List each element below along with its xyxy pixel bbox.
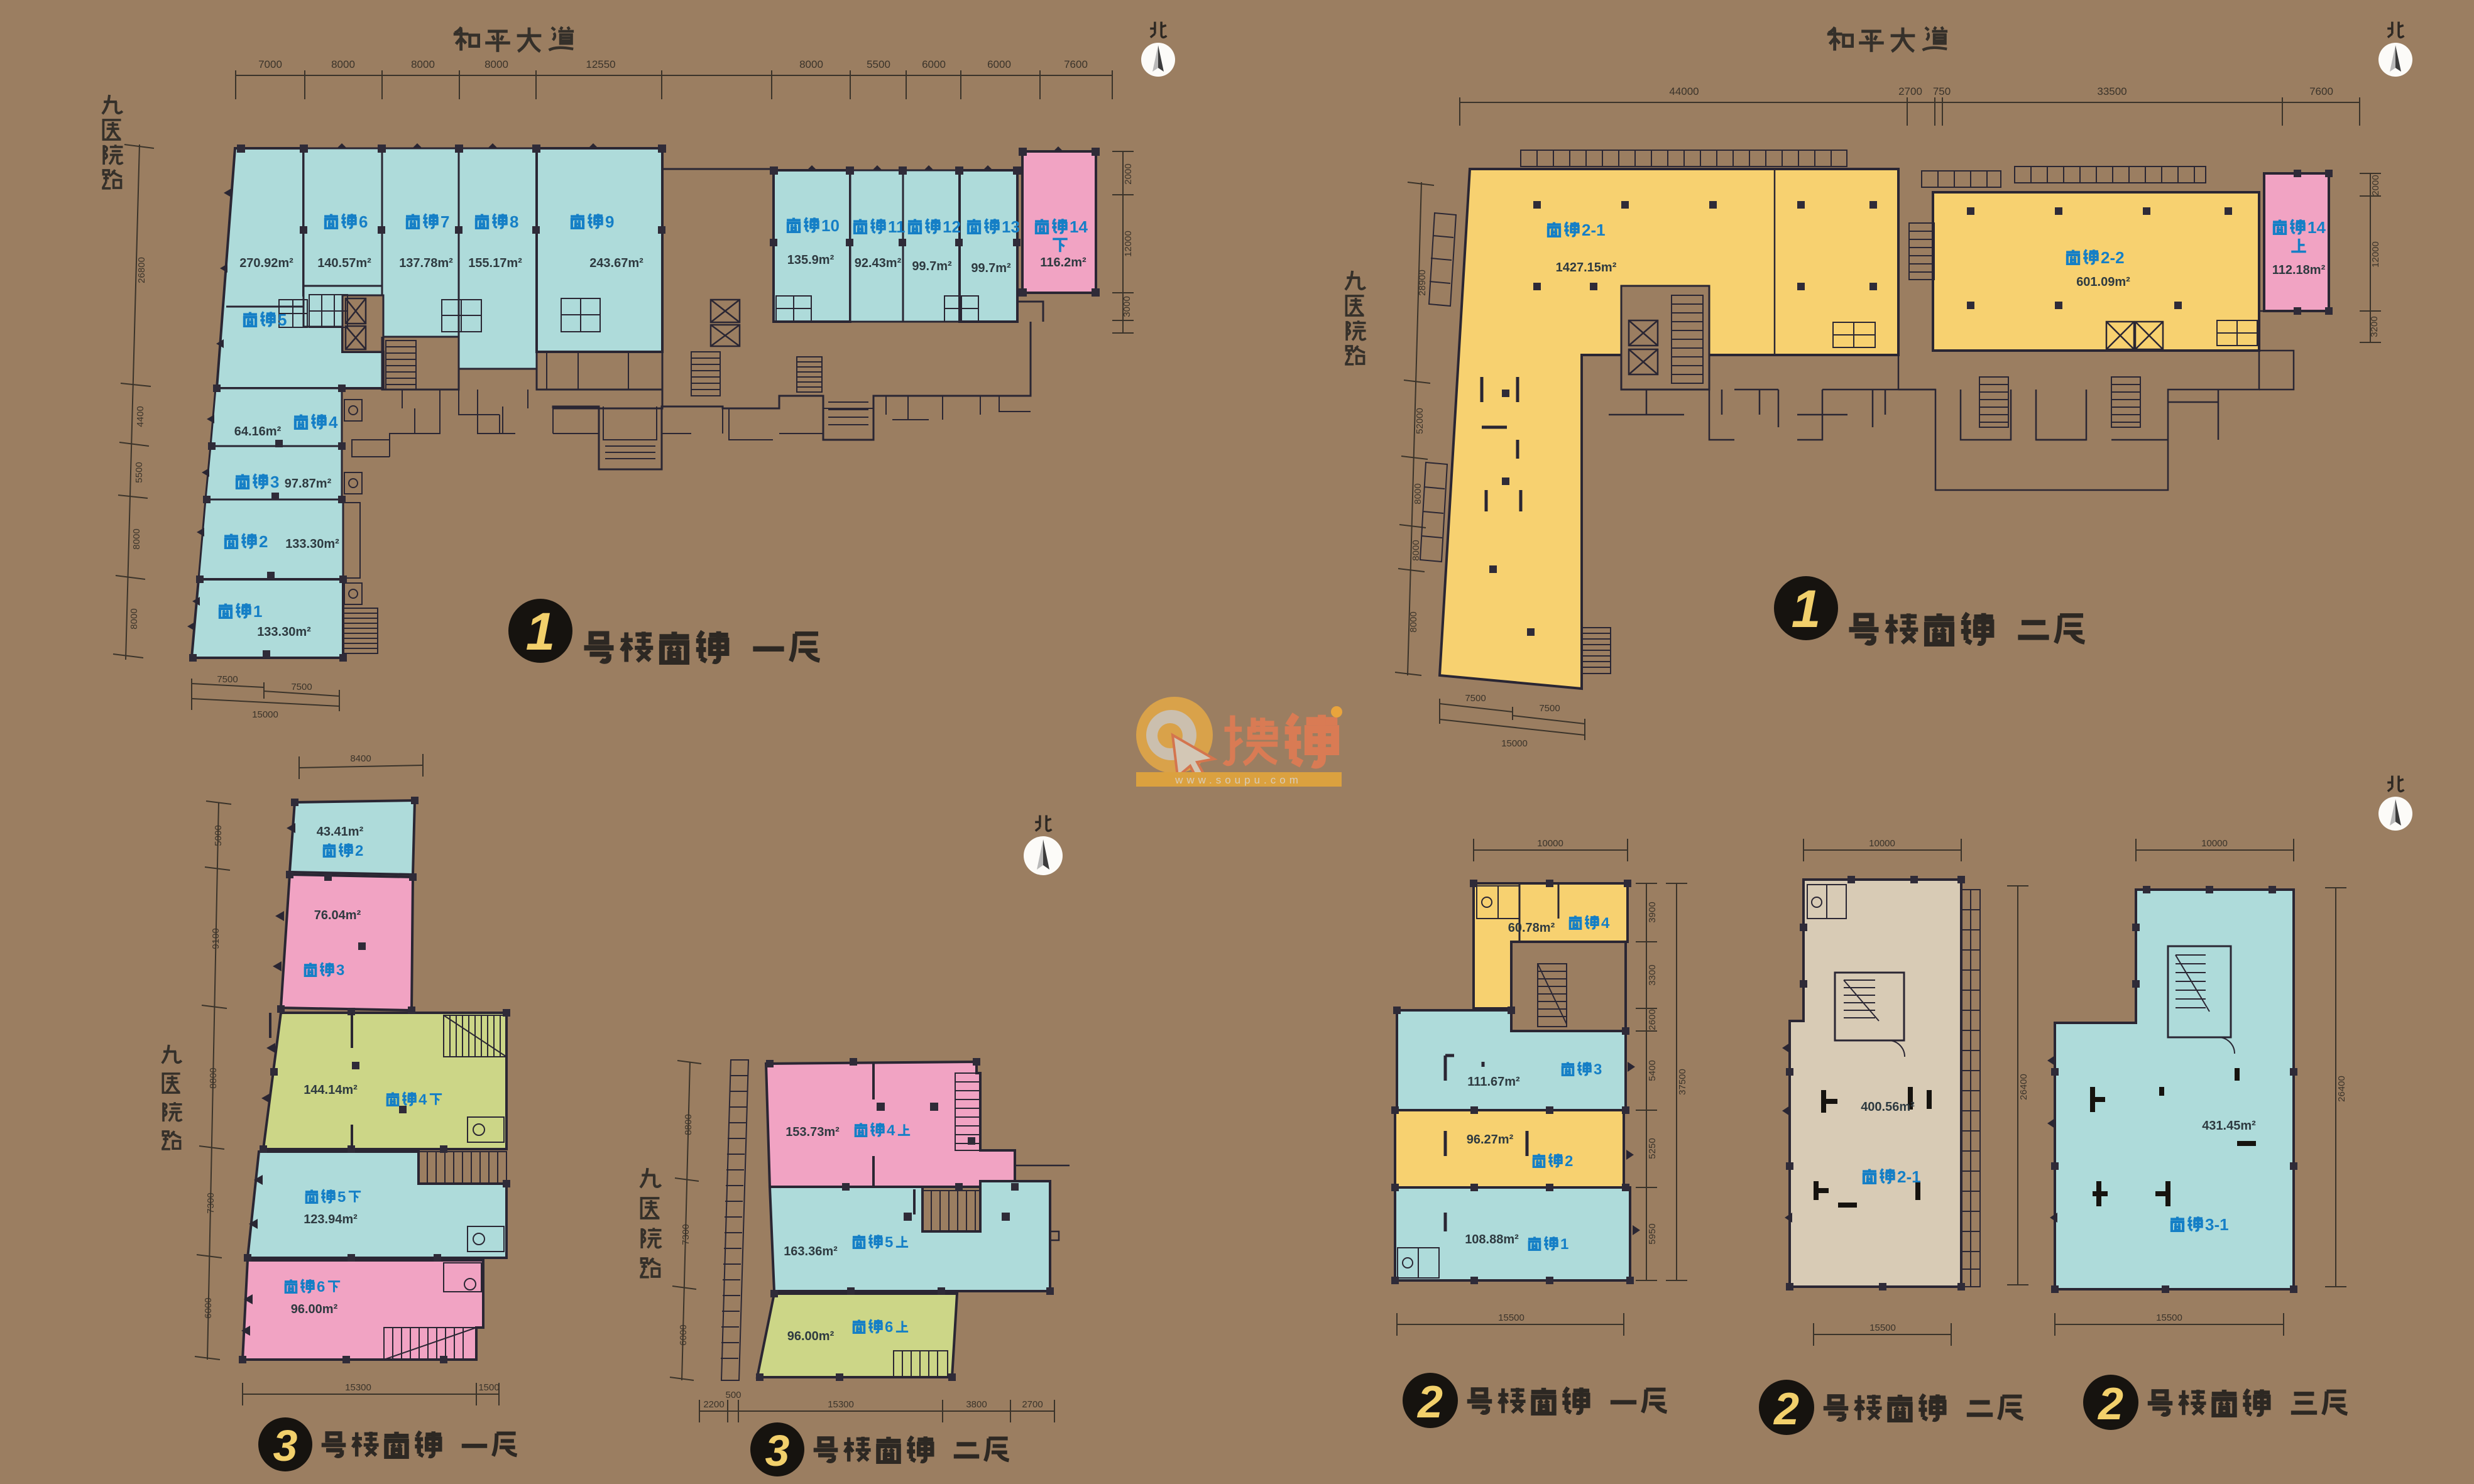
svg-text:15500: 15500 (2156, 1312, 2182, 1323)
svg-text:26400: 26400 (2018, 1074, 2029, 1100)
svg-text:500: 500 (725, 1390, 741, 1400)
svg-text:4400: 4400 (135, 406, 146, 427)
svg-text:163.36m²: 163.36m² (784, 1245, 838, 1258)
svg-text:52000: 52000 (1415, 408, 1425, 434)
svg-text:123.94m²: 123.94m² (304, 1213, 358, 1226)
svg-text:750: 750 (1933, 85, 1951, 97)
svg-text:2700: 2700 (1898, 85, 1922, 97)
svg-text:5: 5 (337, 1189, 346, 1206)
svg-text:10: 10 (821, 216, 840, 235)
svg-text:5000: 5000 (213, 825, 224, 846)
svg-text:96.00m²: 96.00m² (291, 1302, 338, 1316)
svg-text:3: 3 (765, 1426, 790, 1475)
svg-text:43.41m²: 43.41m² (317, 825, 364, 839)
svg-text:2600: 2600 (1647, 1009, 1658, 1030)
svg-text:44000: 44000 (1669, 85, 1699, 97)
svg-text:1: 1 (1792, 579, 1821, 638)
svg-text:12550: 12550 (586, 58, 615, 70)
svg-text:135.9m²: 135.9m² (787, 253, 835, 267)
svg-text:15300: 15300 (828, 1399, 854, 1410)
svg-text:2-1: 2-1 (1582, 221, 1606, 239)
svg-text:8000: 8000 (131, 528, 142, 549)
svg-text:8000: 8000 (331, 58, 355, 70)
svg-text:2000: 2000 (2370, 175, 2381, 195)
svg-text:3: 3 (273, 1421, 298, 1470)
svg-text:12000: 12000 (2370, 241, 2381, 268)
svg-text:96.27m²: 96.27m² (1467, 1133, 1514, 1147)
svg-text:2: 2 (355, 843, 363, 859)
svg-text:6: 6 (885, 1319, 893, 1336)
svg-text:1500: 1500 (478, 1382, 499, 1393)
svg-text:12000: 12000 (1123, 231, 1134, 257)
svg-text:3200: 3200 (2369, 316, 2380, 337)
svg-text:137.78m²: 137.78m² (399, 256, 453, 270)
svg-text:3: 3 (270, 472, 279, 491)
svg-text:4: 4 (887, 1122, 895, 1139)
svg-text:7500: 7500 (1465, 693, 1486, 704)
svg-text:5400: 5400 (1647, 1060, 1658, 1081)
svg-text:1: 1 (526, 602, 556, 661)
svg-text:3000: 3000 (1122, 296, 1132, 317)
svg-text:2-2: 2-2 (2101, 248, 2125, 267)
svg-text:8000: 8000 (129, 608, 140, 629)
svg-text:270.92m²: 270.92m² (239, 256, 293, 270)
svg-text:76.04m²: 76.04m² (314, 908, 361, 922)
svg-text:7600: 7600 (2309, 85, 2333, 97)
svg-text:7500: 7500 (217, 674, 238, 685)
svg-text:5250: 5250 (1647, 1138, 1658, 1159)
svg-text:7600: 7600 (1064, 58, 1088, 70)
svg-text:9100: 9100 (211, 928, 221, 949)
svg-text:6000: 6000 (203, 1297, 214, 1318)
svg-text:3: 3 (1594, 1061, 1602, 1078)
svg-text:2: 2 (1773, 1384, 1799, 1434)
svg-text:99.7m²: 99.7m² (912, 259, 952, 273)
svg-text:155.17m²: 155.17m² (468, 256, 522, 270)
svg-text:8800: 8800 (683, 1114, 694, 1135)
svg-text:9: 9 (605, 212, 614, 231)
svg-text:14: 14 (1070, 217, 1088, 236)
svg-text:1: 1 (1560, 1236, 1568, 1253)
svg-text:7300: 7300 (681, 1224, 691, 1245)
svg-text:8: 8 (510, 212, 518, 231)
svg-text:5950: 5950 (1647, 1223, 1658, 1244)
svg-text:33500: 33500 (2097, 85, 2126, 97)
svg-text:431.45m²: 431.45m² (2202, 1119, 2256, 1133)
svg-text:15300: 15300 (345, 1382, 371, 1393)
svg-text:5500: 5500 (867, 58, 890, 70)
svg-text:1427.15m²: 1427.15m² (1556, 261, 1617, 275)
svg-text:15000: 15000 (252, 709, 278, 720)
svg-text:2: 2 (1565, 1153, 1573, 1170)
svg-text:26800: 26800 (136, 257, 147, 283)
svg-text:2: 2 (259, 532, 268, 551)
svg-text:7500: 7500 (291, 682, 312, 692)
svg-text:5: 5 (885, 1234, 893, 1251)
svg-text:5500: 5500 (134, 462, 145, 483)
svg-text:2: 2 (1416, 1377, 1443, 1427)
svg-text:97.87m²: 97.87m² (285, 477, 332, 491)
svg-text:10000: 10000 (1537, 838, 1563, 849)
svg-text:3300: 3300 (1647, 964, 1658, 985)
svg-text:15500: 15500 (1498, 1312, 1524, 1323)
svg-text:3900: 3900 (1647, 902, 1658, 922)
svg-text:400.56m²: 400.56m² (1861, 1100, 1915, 1114)
svg-text:8000: 8000 (799, 58, 823, 70)
svg-text:28900: 28900 (1417, 270, 1428, 296)
svg-text:243.67m²: 243.67m² (589, 256, 643, 270)
svg-text:2-1: 2-1 (1897, 1167, 1921, 1186)
svg-text:153.73m²: 153.73m² (785, 1125, 840, 1139)
svg-text:6: 6 (359, 212, 368, 231)
svg-text:6000: 6000 (678, 1324, 689, 1345)
svg-text:15500: 15500 (1869, 1323, 1896, 1333)
svg-text:140.57m²: 140.57m² (317, 256, 371, 270)
svg-text:6000: 6000 (987, 58, 1011, 70)
svg-text:8000: 8000 (411, 58, 435, 70)
svg-text:10000: 10000 (1869, 838, 1895, 849)
svg-text:2200: 2200 (703, 1399, 724, 1410)
svg-text:12: 12 (943, 217, 961, 236)
svg-text:601.09m²: 601.09m² (2076, 275, 2130, 289)
svg-text:4: 4 (1601, 915, 1610, 932)
svg-text:133.30m²: 133.30m² (285, 537, 339, 551)
svg-text:116.2m²: 116.2m² (1040, 256, 1086, 270)
svg-text:3800: 3800 (966, 1399, 987, 1410)
svg-text:11: 11 (888, 217, 906, 236)
svg-text:6: 6 (317, 1279, 325, 1296)
svg-text:13: 13 (1002, 217, 1020, 236)
svg-text:6000: 6000 (922, 58, 946, 70)
svg-text:10000: 10000 (2201, 838, 2228, 849)
svg-text:7300: 7300 (205, 1192, 216, 1213)
svg-text:3: 3 (336, 962, 344, 979)
svg-text:60.78m²: 60.78m² (1508, 921, 1555, 935)
svg-text:7500: 7500 (1539, 703, 1560, 714)
svg-text:2: 2 (2097, 1379, 2123, 1429)
svg-text:www.soupu.com: www.soupu.com (1174, 774, 1302, 786)
svg-text:144.14m²: 144.14m² (304, 1083, 358, 1097)
svg-text:37500: 37500 (1677, 1069, 1688, 1095)
svg-text:8800: 8800 (208, 1067, 219, 1088)
svg-text:14: 14 (2307, 218, 2326, 237)
svg-text:8000: 8000 (1408, 611, 1419, 632)
svg-text:2000: 2000 (1123, 163, 1134, 184)
svg-text:5: 5 (278, 310, 287, 329)
svg-text:4: 4 (419, 1091, 427, 1108)
svg-text:8000: 8000 (484, 58, 508, 70)
svg-text:4: 4 (329, 413, 338, 432)
svg-text:7000: 7000 (258, 58, 282, 70)
svg-text:2700: 2700 (1022, 1399, 1043, 1410)
svg-text:7: 7 (441, 212, 449, 231)
svg-text:15000: 15000 (1501, 738, 1528, 749)
svg-text:8400: 8400 (350, 753, 371, 764)
svg-text:133.30m²: 133.30m² (257, 625, 311, 639)
svg-text:8000: 8000 (1413, 483, 1423, 504)
svg-text:3-1: 3-1 (2205, 1215, 2229, 1234)
svg-text:96.00m²: 96.00m² (787, 1329, 835, 1343)
svg-text:26400: 26400 (2336, 1076, 2347, 1102)
svg-text:108.88m²: 108.88m² (1465, 1233, 1519, 1247)
svg-text:64.16m²: 64.16m² (234, 425, 282, 439)
svg-text:111.67m²: 111.67m² (1467, 1075, 1520, 1089)
svg-text:112.18m²: 112.18m² (2272, 263, 2326, 277)
svg-text:99.7m²: 99.7m² (971, 261, 1011, 275)
svg-text:1: 1 (253, 602, 262, 621)
svg-text:92.43m²: 92.43m² (855, 256, 902, 270)
